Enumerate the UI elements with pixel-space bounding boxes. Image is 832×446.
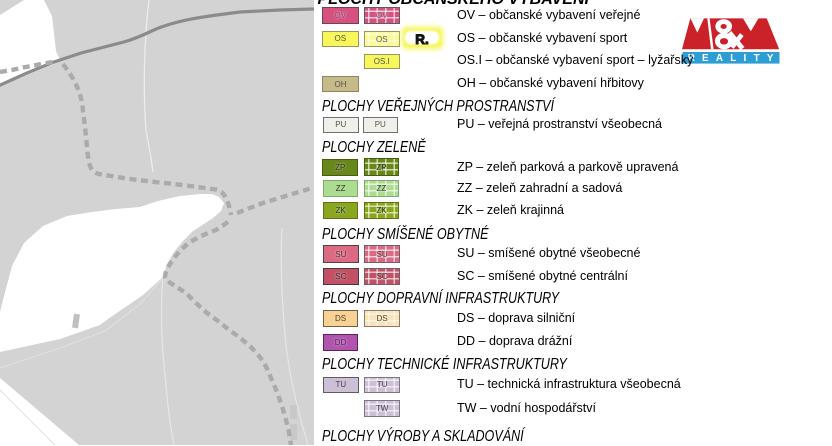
svg-text:REALITY: REALITY (688, 53, 781, 64)
